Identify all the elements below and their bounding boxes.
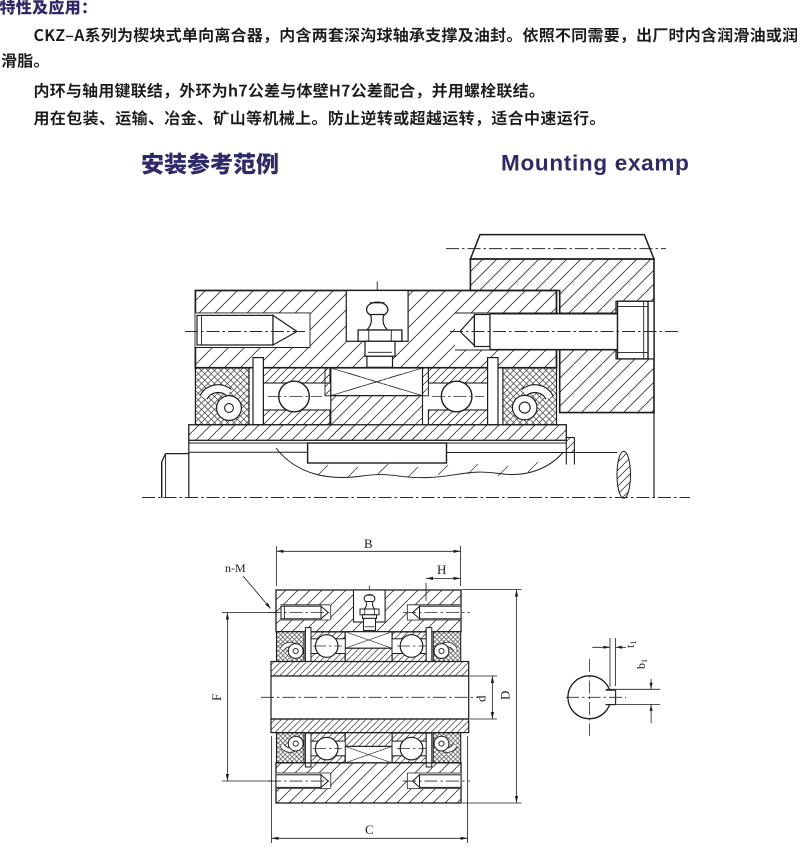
svg-text:H: H (437, 562, 446, 577)
svg-text:D: D (498, 691, 513, 700)
svg-text:F: F (209, 694, 224, 701)
svg-text:n-M: n-M (225, 561, 246, 575)
svg-text:Mounting examp: Mounting examp (501, 151, 690, 176)
svg-text:d: d (474, 695, 489, 702)
svg-text:C: C (365, 822, 374, 837)
svg-text:B: B (364, 536, 373, 551)
